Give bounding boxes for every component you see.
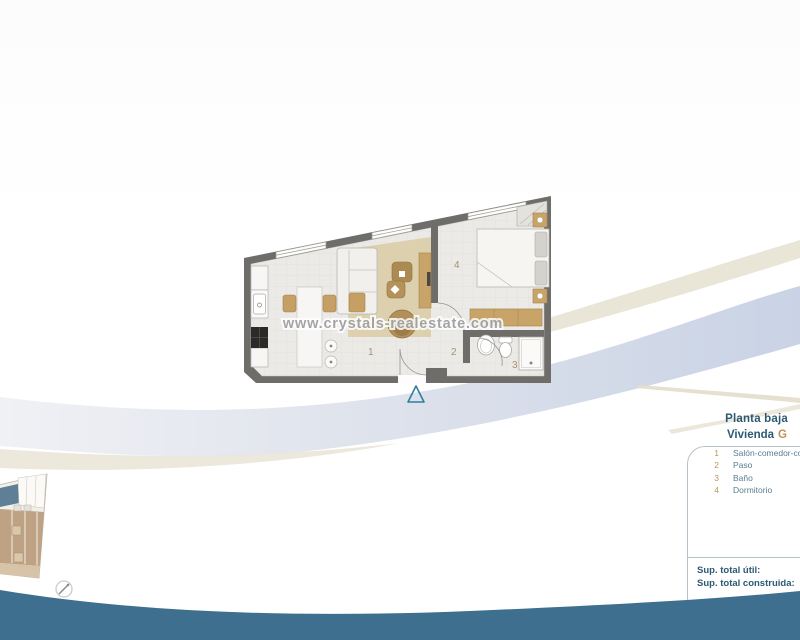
unit-title: ViviendaG [587,429,787,441]
legend-item: 3 Baño [687,473,800,485]
legend-item-label: Paso [733,460,752,470]
legend-item-label: Salón-comedor-cocina [733,448,800,458]
legend-item-number: 2 [687,460,719,470]
legend-item: 4 Dormitorio [687,485,800,497]
total-useful-label: Sup. total útil: [697,564,795,577]
legend-list: 1 Salón-comedor-cocina 2 Paso 3 Baño 4 D… [687,448,800,498]
legend-item-number: 1 [687,448,719,458]
total-built-label: Sup. total construida: [697,577,795,590]
legend-item: 1 Salón-comedor-cocina [687,448,800,460]
legend-item-label: Baño [733,473,753,483]
legend-item-number: 3 [687,473,719,483]
legend-item: 2 Paso [687,460,800,472]
legend-item-label: Dormitorio [733,485,772,495]
legend-item-number: 4 [687,485,719,495]
floor-title: Planta baja [588,413,788,425]
bottom-wave-band [0,0,800,640]
dwelling-label: Vivienda [727,429,774,441]
totals: Sup. total útil: Sup. total construida: [697,564,795,590]
unit-letter: G [778,429,787,441]
